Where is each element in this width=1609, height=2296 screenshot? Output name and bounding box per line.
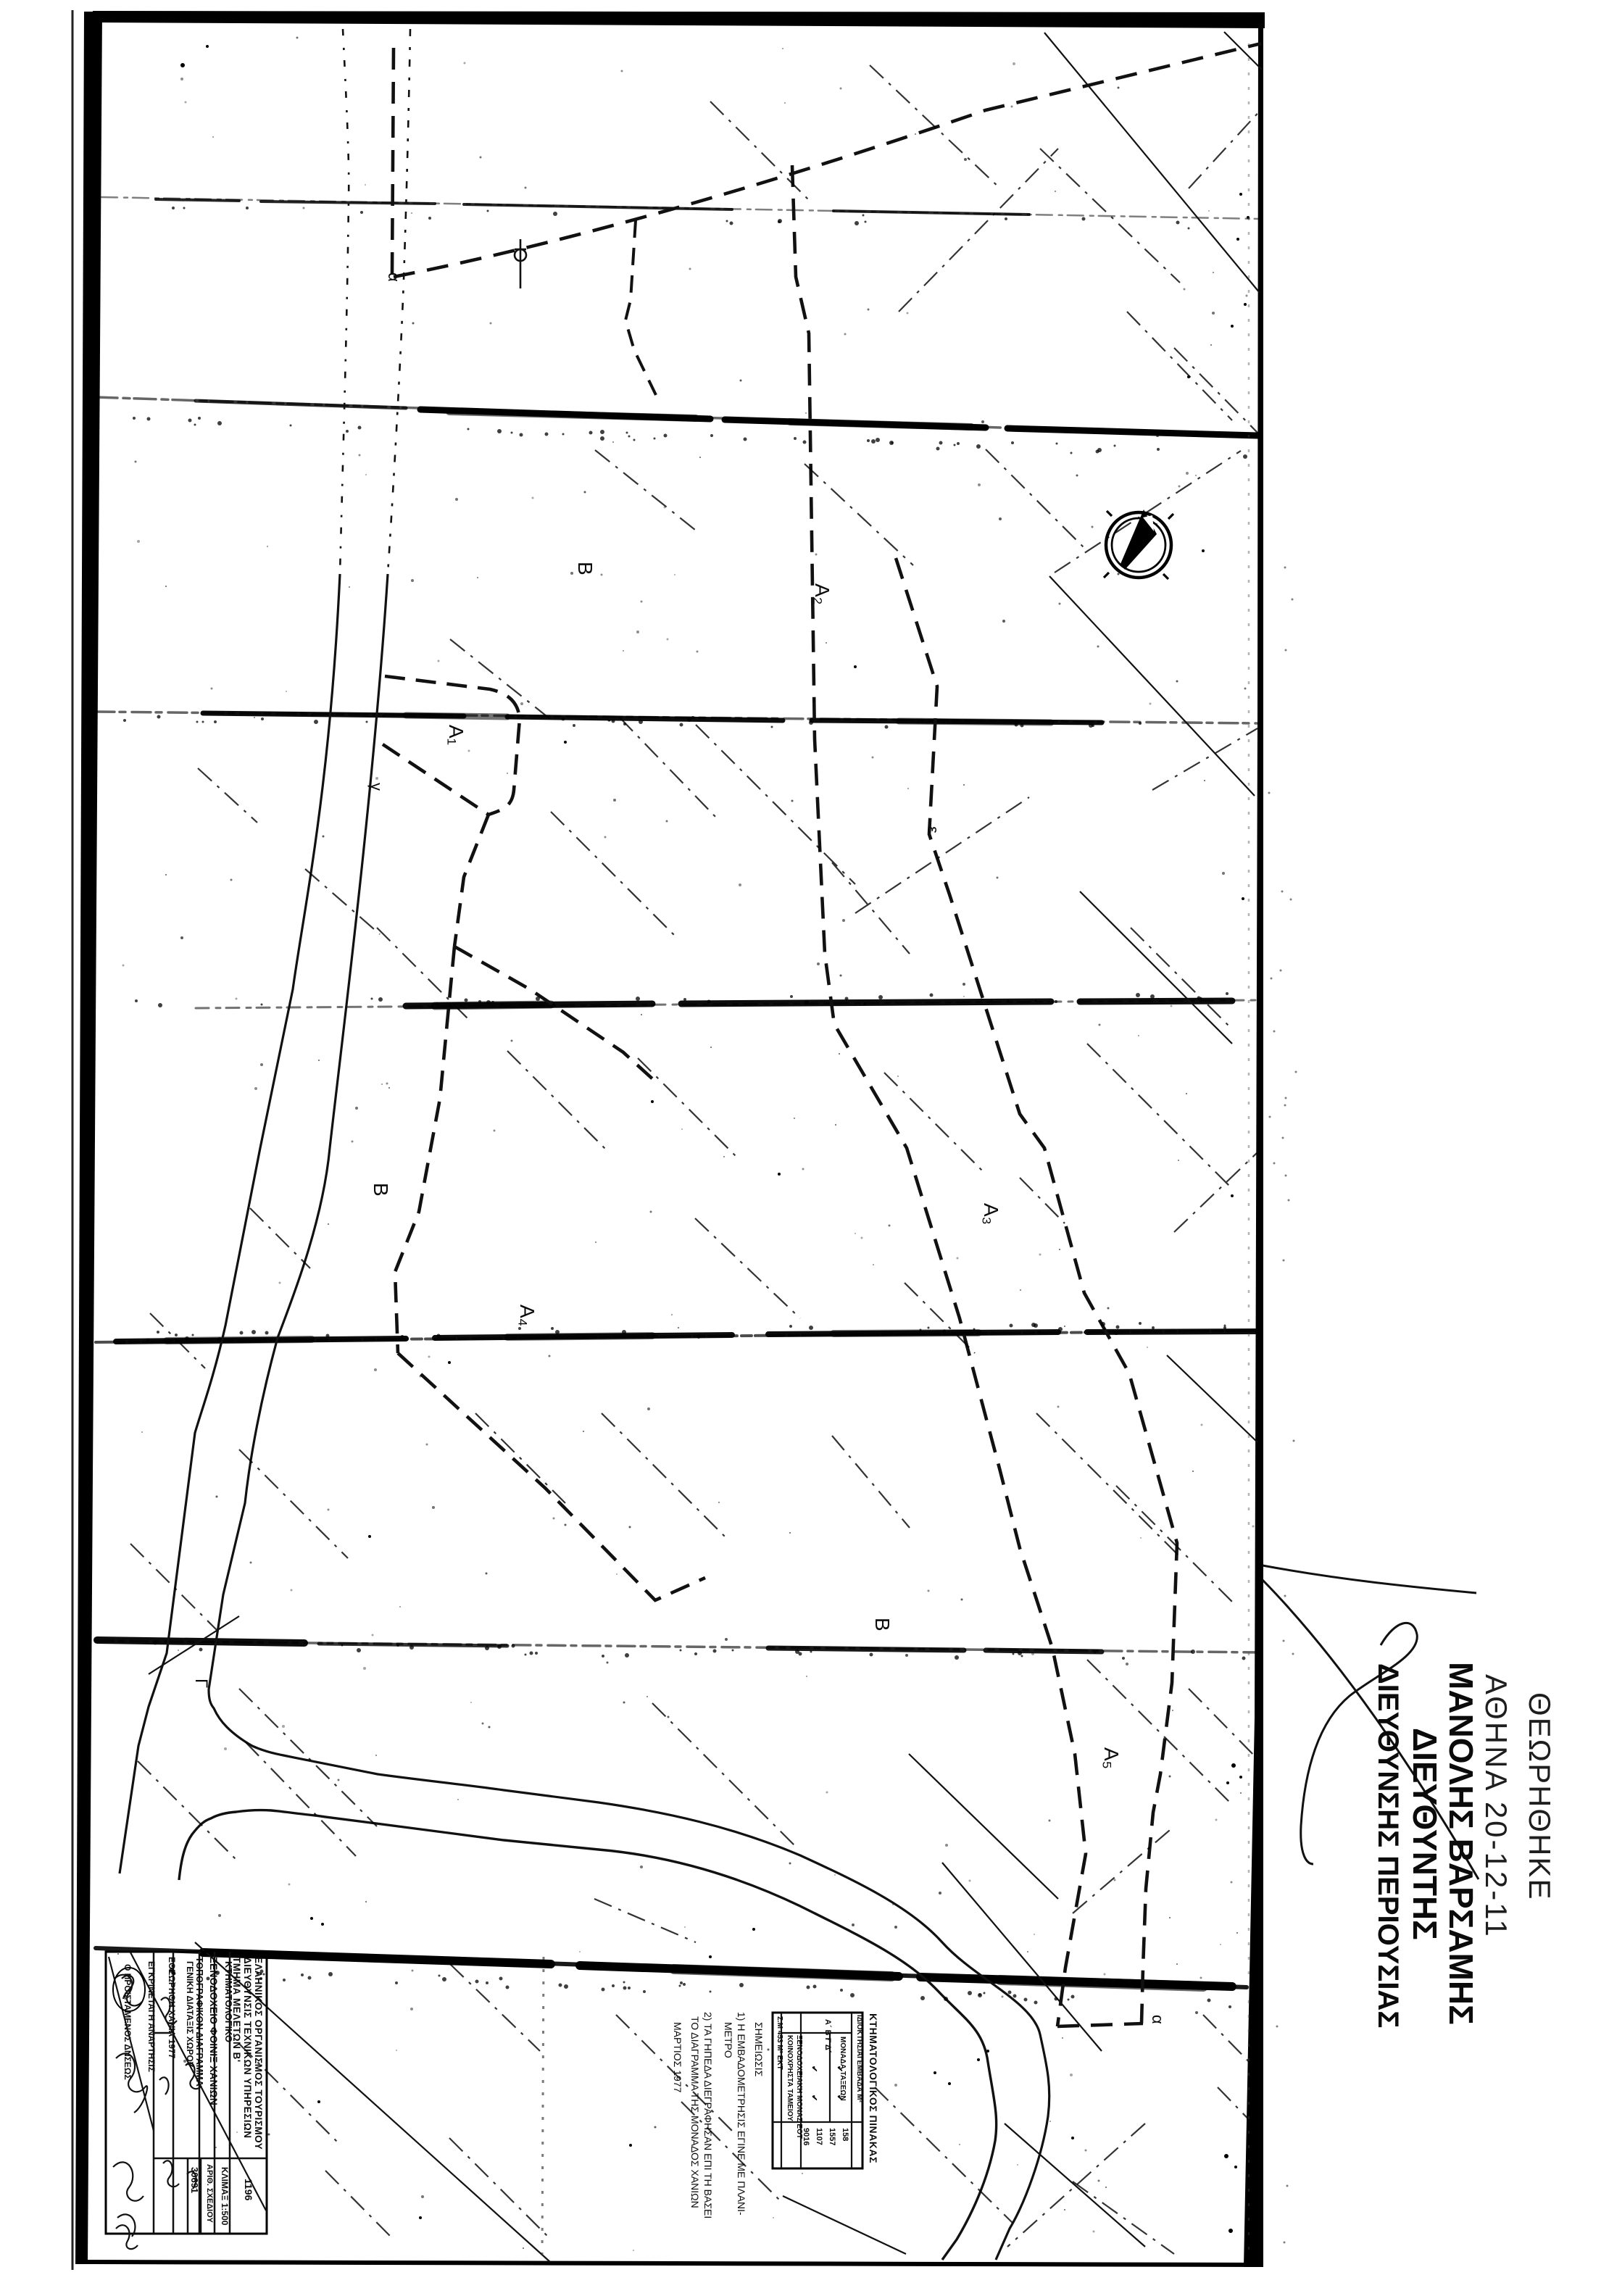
svg-text:1) Η ΕΜΒΑΔΟΜΕΤΡΗΣΙΣ ΕΓΙΝΕ ΜΕ Π: 1) Η ΕΜΒΑΔΟΜΕΤΡΗΣΙΣ ΕΓΙΝΕ ΜΕ ΠΛΑΝΙ- [736,2012,747,2216]
svg-text:ΕΛΛΗΝΙΚΟΣ ΟΡΓΑΝΙΣΜΟΣ ΤΟΥΡΙΣΜΟΥ: ΕΛΛΗΝΙΚΟΣ ΟΡΓΑΝΙΣΜΟΣ ΤΟΥΡΙΣΜΟΥ [253,1957,264,2150]
svg-text:A₅: A₅ [1100,1747,1123,1769]
svg-text:α: α [1149,2015,1167,2024]
svg-text:1107: 1107 [815,2128,823,2145]
svg-text:ΓΕΝΙΚΗ ΔΙΑΤΑΞΙΣ ΧΩΡΟΥ: ΓΕΝΙΚΗ ΔΙΑΤΑΞΙΣ ΧΩΡΟΥ [185,1961,195,2067]
svg-text:2) ΤΑ ΓΗΠΕΔΑ ΔΙΕΓΡΑΦΗΣΑΝ ΕΠΙ Τ: 2) ΤΑ ΓΗΠΕΔΑ ΔΙΕΓΡΑΦΗΣΑΝ ΕΠΙ ΤΗ ΒΑΣΕΙ [702,2012,714,2218]
svg-text:ΔΙΕΥΘΥΝΣΗΣ ΠΕΡΙΟΥΣΙΑΣ: ΔΙΕΥΘΥΝΣΗΣ ΠΕΡΙΟΥΣΙΑΣ [1372,1663,1404,2028]
svg-text:ΚΤΗΜΑΤΟΛΟΓΙΚΟ: ΚΤΗΜΑΤΟΛΟΓΙΚΟ [223,1961,234,2042]
svg-text:ΣΗΜΕΙΩΣΙΣ: ΣΗΜΕΙΩΣΙΣ [753,2022,765,2077]
svg-text:ΙΔΙΟΚΤΗΣΙΑΙ ΕΜΒΑΔΑ Μ²: ΙΔΙΟΚΤΗΣΙΑΙ ΕΜΒΑΔΑ Μ² [855,2015,863,2103]
svg-text:ΞΕΝΟΔΟΧΕΙΑΚΗ ΜΟΝΑΣ ΕΟΤ: ΞΕΝΟΔΟΧΕΙΑΚΗ ΜΟΝΑΣ ΕΟΤ [795,2035,803,2139]
svg-text:✔: ✔ [810,2066,818,2072]
svg-text:ΕΓΚΡΙΝΕΤΑΙ Η ΑΝΑΡΤΗΣΙΣ: ΕΓΚΡΙΝΕΤΑΙ Η ΑΝΑΡΤΗΣΙΣ [146,1961,157,2072]
svg-text:Σ.Μ 453 Μ² ΕΚΤ: Σ.Μ 453 Μ² ΕΚΤ [776,2016,783,2070]
svg-text:ΑΘΗΝΑ 20-12-11: ΑΘΗΝΑ 20-12-11 [1479,1674,1513,1939]
svg-text:ΞΕΝΟΔΟΧΕΙΟ ΦΟΙΝΙΞ ΧΑΝΙΩΝ: ΞΕΝΟΔΟΧΕΙΟ ΦΟΙΝΙΞ ΧΑΝΙΩΝ [208,1957,220,2105]
svg-text:Α´ Β Γ Δ´: Α´ Β Γ Δ´ [823,2019,832,2053]
svg-text:9016: 9016 [802,2128,810,2145]
svg-text:ΔΙΕΥΘΥΝΣΙΣ ΤΕΧΝΙΚΩΝ ΥΠΗΡΕΣΙΩΝ: ΔΙΕΥΘΥΝΣΙΣ ΤΕΧΝΙΚΩΝ ΥΠΗΡΕΣΙΩΝ [242,1957,253,2139]
svg-text:ΜΑΝΟΛΗΣ ΒΑΡΣΑΜΗΣ: ΜΑΝΟΛΗΣ ΒΑΡΣΑΜΗΣ [1442,1662,1480,2025]
svg-text:Γ: Γ [191,1679,211,1688]
svg-text:158: 158 [841,2128,849,2141]
svg-text:✔: ✔ [835,2066,844,2072]
svg-text:✔: ✔ [835,2095,844,2101]
svg-text:ΜΕΤΡΟ: ΜΕΤΡΟ [723,2022,734,2058]
svg-text:ΚΤΗΜΑΤΟΛΟΓΙΚΟΣ ΠΙΝΑΚΑΣ: ΚΤΗΜΑΤΟΛΟΓΙΚΟΣ ΠΙΝΑΚΑΣ [868,2013,879,2163]
svg-text:A₁: A₁ [445,725,467,745]
svg-text:ΔΙΕΥΘΥΝΤΗΣ: ΔΙΕΥΘΥΝΤΗΣ [1406,1728,1444,1940]
svg-text:ΚΟΙΝΟΧΡΗΣΤΑ ΤΑΜΕΙΟΥ: ΚΟΙΝΟΧΡΗΣΤΑ ΤΑΜΕΙΟΥ [786,2035,794,2121]
svg-text:ΜΑΡΤΙΟΣ 1977: ΜΑΡΤΙΟΣ 1977 [672,2022,683,2093]
svg-text:A₄: A₄ [516,1305,539,1326]
svg-text:A₃: A₃ [980,1203,1002,1225]
svg-text:γ: γ [367,783,386,791]
svg-text:B: B [871,1618,894,1631]
svg-text:ΘΕΩΡΗΘΗΚΕ: ΘΕΩΡΗΘΗΚΕ [1523,1692,1557,1900]
svg-text:ΤΟ ΔΙΑΓΡΑΜΜΑ ΤΗΣ ΜΟΝΑΔΟΣ ΧΑΝΙΩ: ΤΟ ΔΙΑΓΡΑΜΜΑ ΤΗΣ ΜΟΝΑΔΟΣ ΧΑΝΙΩΝ [689,2016,701,2208]
svg-text:ΤΟΠΟΓΡΑΦΙΚΟΝ ΔΙΑΓΡΑΜΜΑ: ΤΟΠΟΓΡΑΦΙΚΟΝ ΔΙΑΓΡΑΜΜΑ [194,1957,204,2087]
svg-text:ΑΡΙΘ. ΣΧΕΔΙΟΥ: ΑΡΙΘ. ΣΧΕΔΙΟΥ [205,2164,214,2223]
svg-text:α: α [385,273,403,282]
svg-text:B: B [370,1183,392,1197]
svg-text:✔: ✔ [810,2095,818,2101]
svg-text:ε: ε [924,826,942,833]
svg-text:1557: 1557 [828,2128,836,2145]
svg-text:ΚΛΙΜΑΞ 1:500: ΚΛΙΜΑΞ 1:500 [220,2167,230,2226]
svg-text:B: B [574,562,596,575]
svg-text:A₂: A₂ [811,583,833,605]
svg-text:1196: 1196 [243,2179,254,2201]
